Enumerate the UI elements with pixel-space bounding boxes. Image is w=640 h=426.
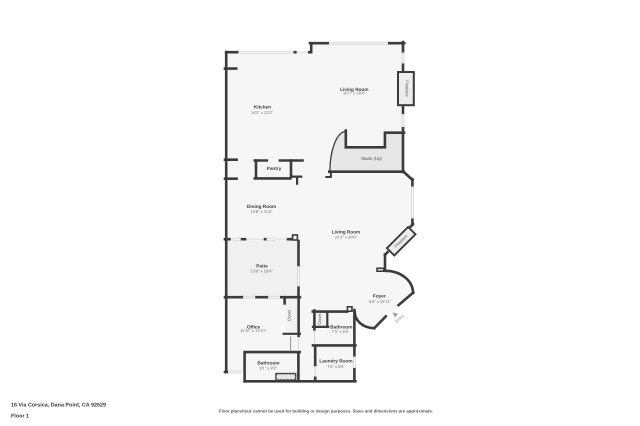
svg-text:Pantry: Pantry <box>267 166 282 171</box>
svg-text:16 Via Corsica, Dana Point, CA: 16 Via Corsica, Dana Point, CA 92629 <box>11 402 106 408</box>
svg-text:Closet: Closet <box>287 310 291 321</box>
svg-text:7'3" x 6'6": 7'3" x 6'6" <box>332 330 350 334</box>
svg-text:Fireplace: Fireplace <box>404 80 408 97</box>
svg-text:21'2" x 20'6": 21'2" x 20'6" <box>335 235 357 239</box>
svg-text:Stairs (Up): Stairs (Up) <box>361 157 382 162</box>
svg-text:Patio: Patio <box>256 264 267 269</box>
svg-text:6'9" x 10'11": 6'9" x 10'11" <box>369 300 391 304</box>
svg-text:Laundry Room: Laundry Room <box>319 359 352 364</box>
svg-text:Bathroom: Bathroom <box>330 325 352 330</box>
svg-text:Kitchen: Kitchen <box>254 105 271 110</box>
svg-text:9'1" x 9'3": 9'1" x 9'3" <box>260 366 278 370</box>
svg-text:Foyer: Foyer <box>373 294 386 299</box>
svg-text:Floor plans/tour cannot be use: Floor plans/tour cannot be used for buil… <box>219 408 433 413</box>
svg-text:7'3" x 6'6": 7'3" x 6'6" <box>327 365 345 369</box>
svg-text:30'7" x 18'4": 30'7" x 18'4" <box>343 92 365 96</box>
svg-text:13'8" x 11'6": 13'8" x 11'6" <box>251 210 273 214</box>
svg-text:Living Room: Living Room <box>332 230 361 235</box>
svg-text:Dining Room: Dining Room <box>247 204 276 209</box>
svg-text:11'10" x 13'10": 11'10" x 13'10" <box>240 329 266 333</box>
svg-text:Floor 1: Floor 1 <box>11 413 29 419</box>
svg-text:Closet: Closet <box>318 313 322 324</box>
svg-text:13'9" x 18'4": 13'9" x 18'4" <box>251 269 273 273</box>
svg-text:14'2" x 23'2": 14'2" x 23'2" <box>251 111 273 115</box>
svg-text:Bathroom: Bathroom <box>257 361 279 366</box>
